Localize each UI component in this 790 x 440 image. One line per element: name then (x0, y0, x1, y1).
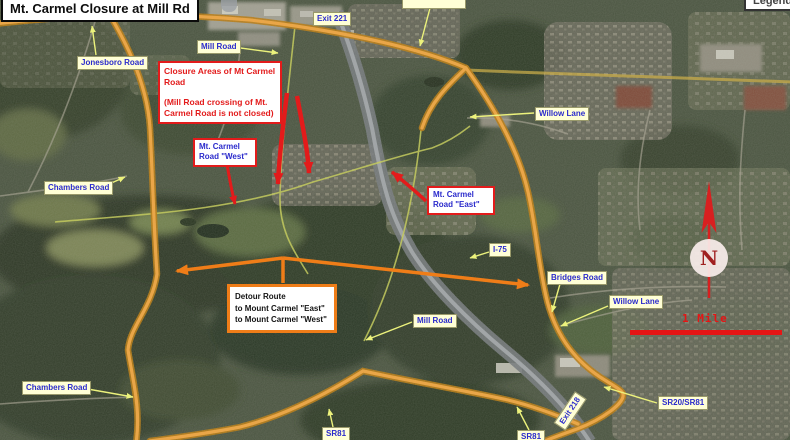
compass-north-label: N (690, 239, 728, 277)
scale-label: 1 Mile (682, 312, 728, 325)
map-artifact (221, 0, 237, 12)
road-label-jonesboro-road: Jonesboro Road (77, 56, 148, 70)
road-label-bridges-road: Bridges Road (547, 271, 607, 285)
road-label-sr81-east: SR81 (517, 430, 545, 440)
map-title: Mt. Carmel Closure at Mill Rd (1, 0, 199, 22)
mt-carmel-west-label: Mt. Carmel Road "West" (193, 138, 257, 167)
road-label-willow-lane-east: Willow Lane (609, 295, 663, 309)
closure-note-subtext: (Mill Road crossing of Mt. Carmel Road i… (164, 97, 276, 119)
road-label-clipped-top-label (402, 0, 466, 9)
closure-note-text: Closure Areas of Mt Carmel Road (164, 66, 276, 88)
mt-carmel-east-label: Mt. Carmel Road "East" (427, 186, 495, 215)
scale-bar (630, 330, 782, 335)
road-label-exit-221: Exit 221 (313, 12, 351, 26)
road-label-sr20-sr81: SR20/SR81 (658, 396, 708, 410)
road-label-i-75: I-75 (489, 243, 511, 257)
detour-route-title: Detour Route (235, 291, 329, 303)
map-canvas[interactable]: Jonesboro RoadMill RoadExit 221Willow La… (0, 0, 790, 440)
road-label-exit-218: Exit 218 (554, 391, 587, 430)
legend-box[interactable]: Legend (744, 0, 790, 11)
road-label-chambers-road-south: Chambers Road (22, 381, 91, 395)
road-label-willow-lane-north: Willow Lane (535, 107, 589, 121)
road-label-layer: Jonesboro RoadMill RoadExit 221Willow La… (0, 0, 790, 440)
road-label-mill-road-north: Mill Road (197, 40, 241, 54)
detour-route-east-line: to Mount Carmel "East" (235, 303, 329, 315)
detour-route-box: Detour Route to Mount Carmel "East" to M… (227, 284, 337, 333)
road-label-mill-road-center: Mill Road (413, 314, 457, 328)
road-label-sr81-west: SR81 (322, 427, 350, 440)
road-label-chambers-road-west: Chambers Road (44, 181, 113, 195)
detour-route-west-line: to Mount Carmel "West" (235, 314, 329, 326)
closure-note-box: Closure Areas of Mt Carmel Road (Mill Ro… (158, 61, 282, 124)
